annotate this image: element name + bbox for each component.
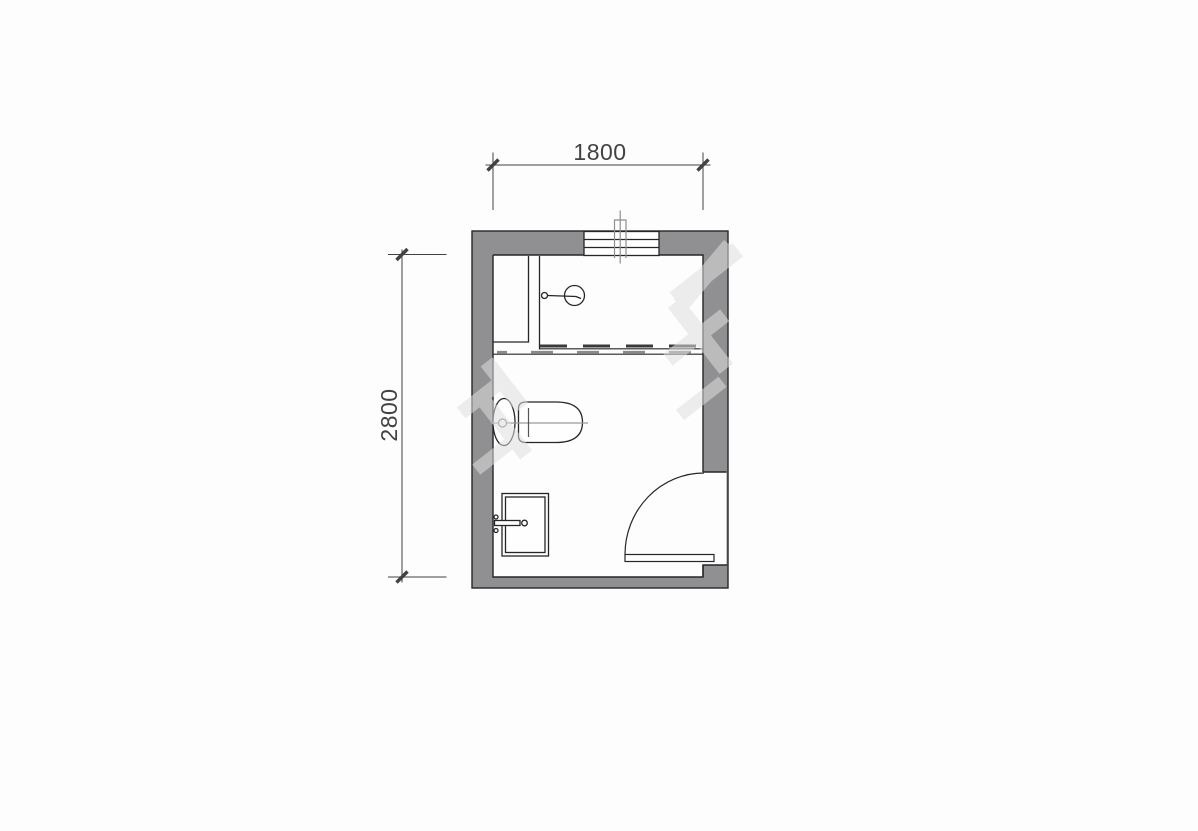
- service-duct: [494, 256, 529, 342]
- basin-valve-cold: [494, 529, 498, 533]
- shower-head: [565, 286, 585, 306]
- door-leaf: [625, 555, 714, 562]
- window-frame: [584, 232, 659, 256]
- door-swing-arc: [625, 473, 704, 555]
- dim-left-label: 2800: [376, 388, 402, 441]
- dim-top-label: 1800: [573, 139, 626, 165]
- floor-plan-canvas: 1800 2800: [0, 0, 1198, 831]
- dimension-left-text: 2800: [376, 388, 402, 441]
- wash-basin: [494, 494, 549, 557]
- shower-valve: [542, 293, 548, 299]
- dimension-top-text: 1800: [573, 139, 626, 165]
- door-sill-wall-block: [703, 565, 728, 588]
- door: [625, 473, 714, 562]
- basin-drain: [522, 520, 528, 526]
- basin-faucet-lever: [495, 521, 521, 526]
- basin-valve-hot: [494, 515, 498, 519]
- window: [584, 232, 659, 256]
- floor-plan-drawing: 1800 2800: [0, 0, 1198, 831]
- shower-area: [494, 256, 703, 354]
- door-opening: [702, 472, 726, 566]
